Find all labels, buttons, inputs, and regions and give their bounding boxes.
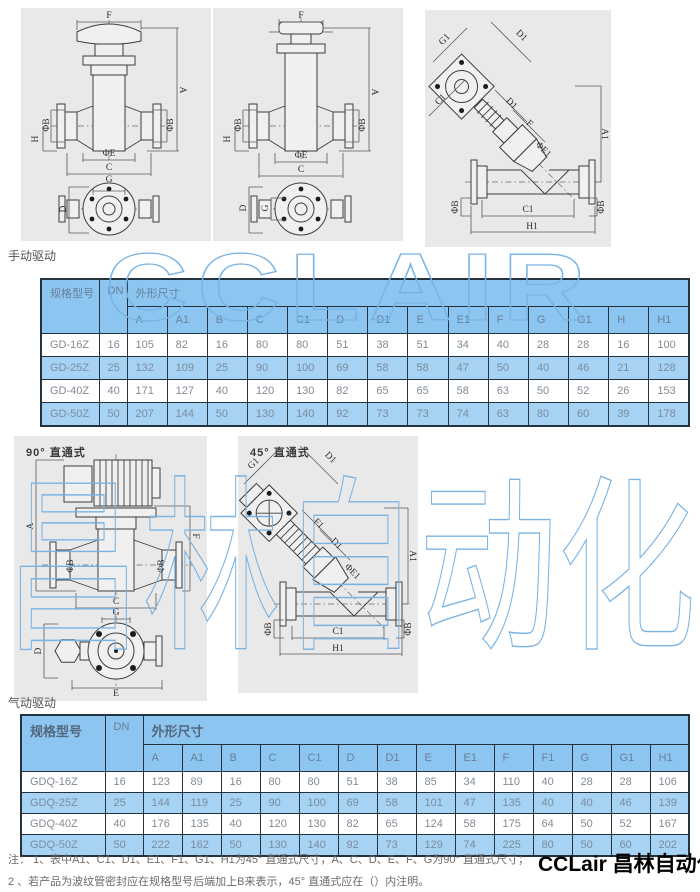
value-cell: 176 [143, 814, 182, 835]
model-cell: GD-50Z [41, 403, 99, 427]
drawing-manual-valve-front-2: FAΦBΦBHΦECDG [213, 8, 403, 241]
value-cell: 40 [207, 380, 247, 403]
value-cell: 40 [572, 793, 611, 814]
value-cell: 28 [528, 334, 568, 357]
dim-label-phi-b: ΦB [404, 622, 414, 635]
dim-col-header: C1 [288, 307, 328, 334]
dim-col-header: D [338, 745, 377, 772]
dim-col-header: F [488, 307, 528, 334]
dim-col-header: A1 [182, 745, 221, 772]
value-cell: 51 [328, 334, 368, 357]
value-cell: 73 [408, 403, 448, 427]
value-cell: 105 [127, 334, 167, 357]
value-cell: 65 [368, 380, 408, 403]
dim-label-phi-b: ΦB [264, 622, 274, 635]
value-cell: 130 [299, 814, 338, 835]
table-row: GD-16Z16105821680805138513440282816100 [41, 334, 689, 357]
dim-col-header: D1 [377, 745, 416, 772]
value-cell: 109 [167, 357, 207, 380]
value-cell: 26 [609, 380, 649, 403]
dim-label-a: A [369, 89, 379, 96]
value-cell: 119 [182, 793, 221, 814]
value-cell: 28 [572, 772, 611, 793]
value-cell: 144 [167, 403, 207, 427]
footnote-line-1: 注： 1、表中A1、C1、D1、E1、F1、G1、H1为45° 直通式尺寸，A、… [8, 851, 529, 867]
drawing-pneumatic-valve-45deg: 45° 直通式 [238, 436, 418, 693]
section-label-pneumatic-drive: 气动驱动 [8, 694, 56, 711]
dim-col-header: G1 [569, 307, 609, 334]
value-cell: 40 [533, 793, 572, 814]
dim-label-phi-b: ΦB [451, 200, 461, 213]
col-header-outline-dims: 外形尺寸 [143, 715, 689, 745]
value-cell: 58 [408, 357, 448, 380]
value-cell: 58 [448, 380, 488, 403]
value-cell: 175 [494, 814, 533, 835]
dim-label-a: A [26, 523, 36, 530]
dn-cell: 40 [105, 814, 143, 835]
dim-col-header: B [221, 745, 260, 772]
drawing-manual-valve-front-1: FAΦBΦBHΦECGD [21, 8, 211, 241]
col-header-model: 规格型号 [41, 279, 99, 334]
footnote-line-2: 2 、若产品为波纹管密封应在规格型号后端加上B来表示，45° 直通式应在（）内注… [8, 873, 429, 889]
value-cell: 135 [494, 793, 533, 814]
dn-cell: 25 [105, 793, 143, 814]
dim-label-h: H [31, 136, 41, 143]
value-cell: 40 [528, 357, 568, 380]
value-cell: 82 [328, 380, 368, 403]
value-cell: 21 [609, 357, 649, 380]
dim-col-header: H1 [650, 745, 689, 772]
value-cell: 58 [455, 814, 494, 835]
value-cell: 16 [609, 334, 649, 357]
dim-col-header: A1 [167, 307, 207, 334]
value-cell: 80 [247, 334, 287, 357]
value-cell: 28 [611, 772, 650, 793]
value-cell: 65 [377, 814, 416, 835]
value-cell: 58 [377, 793, 416, 814]
value-cell: 140 [288, 403, 328, 427]
value-cell: 46 [611, 793, 650, 814]
value-cell: 38 [368, 334, 408, 357]
dim-label-h: H [223, 136, 233, 143]
value-cell: 171 [127, 380, 167, 403]
value-cell: 100 [288, 357, 328, 380]
value-cell: 40 [533, 772, 572, 793]
col-header-dn: DN [99, 279, 127, 334]
dim-label-a1: A1 [407, 550, 417, 562]
dim-col-header: H1 [649, 307, 689, 334]
panel-title-90deg: 90° 直通式 [26, 444, 86, 460]
value-cell: 50 [207, 403, 247, 427]
dim-col-header: C1 [299, 745, 338, 772]
table-row: GD-25Z2513210925901006958584750404621128 [41, 357, 689, 380]
value-cell: 64 [533, 814, 572, 835]
value-cell: 135 [182, 814, 221, 835]
dim-col-header: G1 [611, 745, 650, 772]
dim-label-a: A [177, 87, 187, 94]
value-cell: 34 [455, 772, 494, 793]
dim-col-header: C [247, 307, 287, 334]
value-cell: 25 [221, 793, 260, 814]
value-cell: 52 [569, 380, 609, 403]
value-cell: 100 [649, 334, 689, 357]
value-cell: 82 [167, 334, 207, 357]
value-cell: 69 [328, 357, 368, 380]
value-cell: 51 [338, 772, 377, 793]
value-cell: 80 [260, 772, 299, 793]
dn-cell: 40 [99, 380, 127, 403]
dim-label-d: D [34, 648, 44, 655]
dim-label-d: D [59, 206, 69, 213]
value-cell: 178 [649, 403, 689, 427]
dim-col-header: G [572, 745, 611, 772]
dim-col-header: F1 [533, 745, 572, 772]
value-cell: 50 [488, 357, 528, 380]
value-cell: 63 [488, 403, 528, 427]
col-header-dn: DN [105, 715, 143, 772]
value-cell: 127 [167, 380, 207, 403]
value-cell: 46 [569, 357, 609, 380]
value-cell: 28 [569, 334, 609, 357]
drawing-pneumatic-valve-90deg: 90° 直通式 [14, 436, 207, 701]
dim-col-header: E1 [455, 745, 494, 772]
value-cell: 40 [221, 814, 260, 835]
dim-label-c1: C1 [522, 205, 533, 215]
value-cell: 90 [247, 357, 287, 380]
value-cell: 16 [221, 772, 260, 793]
value-cell: 167 [650, 814, 689, 835]
dim-label-phi-b: ΦB [42, 118, 52, 131]
value-cell: 128 [649, 357, 689, 380]
dim-col-header: H [609, 307, 649, 334]
dim-col-header: D1 [368, 307, 408, 334]
value-cell: 40 [488, 334, 528, 357]
model-cell: GDQ-25Z [21, 793, 105, 814]
dim-label-f: F [106, 11, 111, 21]
dim-label-phi-b: ΦB [597, 200, 607, 213]
dn-cell: 16 [99, 334, 127, 357]
dim-label-c: C [113, 597, 119, 607]
table-row: GD-50Z5020714450130140927373746380603917… [41, 403, 689, 427]
value-cell: 110 [494, 772, 533, 793]
dim-col-header: E [416, 745, 455, 772]
value-cell: 69 [338, 793, 377, 814]
value-cell: 47 [455, 793, 494, 814]
dim-label-c: C [298, 165, 304, 175]
dim-label-h1: H1 [526, 222, 538, 232]
value-cell: 101 [416, 793, 455, 814]
dim-label-g: G [106, 175, 113, 185]
table-row: GD-40Z4017112740120130826565586350522615… [41, 380, 689, 403]
dim-label-phi-b: ΦB [358, 118, 368, 131]
dim-col-header: F [494, 745, 533, 772]
dim-col-header: A [127, 307, 167, 334]
dim-label-phi-e: ΦE [103, 149, 116, 159]
model-cell: GDQ-40Z [21, 814, 105, 835]
value-cell: 106 [650, 772, 689, 793]
value-cell: 139 [650, 793, 689, 814]
model-cell: GD-40Z [41, 380, 99, 403]
dim-col-header: B [207, 307, 247, 334]
value-cell: 50 [528, 380, 568, 403]
value-cell: 100 [299, 793, 338, 814]
dim-label-g: G [113, 608, 120, 618]
dim-label-e: E [113, 689, 119, 699]
model-cell: GDQ-16Z [21, 772, 105, 793]
model-cell: GD-16Z [41, 334, 99, 357]
dim-label-phi-b: ΦB [66, 559, 76, 572]
value-cell: 73 [368, 403, 408, 427]
value-cell: 80 [528, 403, 568, 427]
model-cell: GD-25Z [41, 357, 99, 380]
catalog-page: FAΦBΦBHΦECGD [0, 0, 700, 892]
dn-cell: 25 [99, 357, 127, 380]
dim-label-phi-b: ΦB [234, 118, 244, 131]
value-cell: 132 [127, 357, 167, 380]
value-cell: 16 [207, 334, 247, 357]
value-cell: 38 [377, 772, 416, 793]
value-cell: 50 [572, 814, 611, 835]
valve-sketch [238, 436, 418, 693]
panel-title-45deg: 45° 直通式 [250, 444, 310, 460]
value-cell: 80 [299, 772, 338, 793]
dim-label-g: G [261, 205, 271, 212]
dim-label-phi-b: ΦB [166, 118, 176, 131]
dim-label-f: F [190, 533, 200, 538]
value-cell: 144 [143, 793, 182, 814]
dim-label-a1: A1 [599, 128, 609, 140]
value-cell: 51 [408, 334, 448, 357]
value-cell: 82 [338, 814, 377, 835]
value-cell: 120 [247, 380, 287, 403]
dim-col-header: E1 [448, 307, 488, 334]
col-header-model: 规格型号 [21, 715, 105, 772]
dim-label-c1: C1 [332, 627, 343, 637]
dim-label-d: D [239, 205, 249, 212]
value-cell: 124 [416, 814, 455, 835]
value-cell: 207 [127, 403, 167, 427]
manual-dimensions-table: 规格型号 DN 外形尺寸 AA1BCC1DD1EE1FGG1HH1 GD-16Z… [40, 278, 690, 427]
value-cell: 90 [260, 793, 299, 814]
value-cell: 80 [288, 334, 328, 357]
value-cell: 39 [609, 403, 649, 427]
value-cell: 123 [143, 772, 182, 793]
dim-col-header: G [528, 307, 568, 334]
table-row: GDQ-25Z251441192590100695810147135404046… [21, 793, 689, 814]
dim-label-c: C [106, 163, 112, 173]
value-cell: 58 [368, 357, 408, 380]
section-label-manual-drive: 手动驱动 [8, 247, 56, 264]
value-cell: 130 [247, 403, 287, 427]
valve-sketch [14, 436, 207, 701]
brand-logo: CCLair 昌林自动化 [538, 848, 700, 878]
dim-col-header: A [143, 745, 182, 772]
value-cell: 34 [448, 334, 488, 357]
dn-cell: 16 [105, 772, 143, 793]
value-cell: 65 [408, 380, 448, 403]
value-cell: 89 [182, 772, 221, 793]
value-cell: 153 [649, 380, 689, 403]
value-cell: 63 [488, 380, 528, 403]
dim-col-header: D [328, 307, 368, 334]
value-cell: 74 [448, 403, 488, 427]
dim-label-h1: H1 [332, 644, 344, 654]
value-cell: 60 [569, 403, 609, 427]
pneumatic-dimensions-table: 规格型号 DN 外形尺寸 AA1BCC1DD1EE1FF1GG1H1 GDQ-1… [20, 714, 690, 857]
dim-col-header: C [260, 745, 299, 772]
table-row: GDQ-40Z401761354012013082651245817564505… [21, 814, 689, 835]
dim-label-f: F [298, 11, 303, 21]
value-cell: 25 [207, 357, 247, 380]
dim-col-header: E [408, 307, 448, 334]
value-cell: 47 [448, 357, 488, 380]
value-cell: 92 [328, 403, 368, 427]
table-row: GDQ-16Z161238916808051388534110402828106 [21, 772, 689, 793]
value-cell: 130 [288, 380, 328, 403]
value-cell: 85 [416, 772, 455, 793]
col-header-outline-dims: 外形尺寸 [127, 279, 689, 307]
dim-label-phi-e: ΦE [295, 151, 308, 161]
dim-label-phi-b: ΦB [157, 559, 167, 572]
dn-cell: 50 [99, 403, 127, 427]
drawing-manual-valve-45deg: G1D1C1D1FΦE1A1ΦBΦBC1H1 [425, 10, 611, 247]
value-cell: 120 [260, 814, 299, 835]
value-cell: 52 [611, 814, 650, 835]
